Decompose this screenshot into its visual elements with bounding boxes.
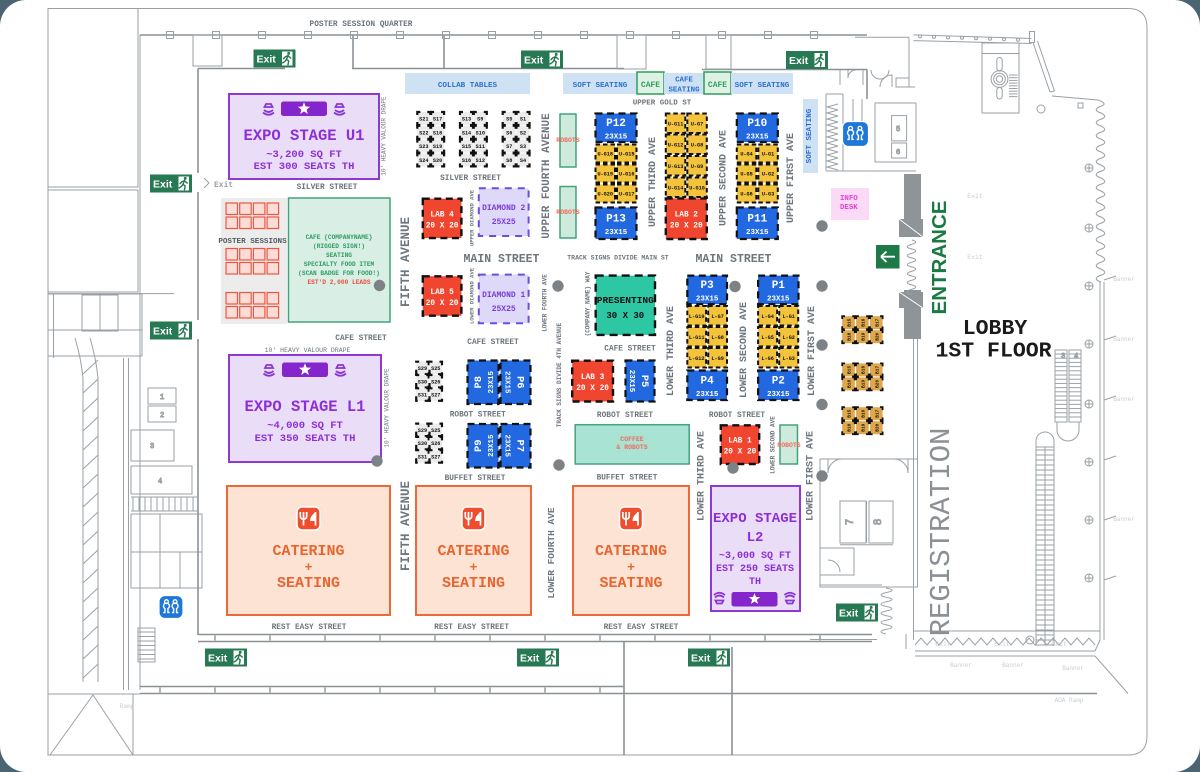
svg-text:U-G12: U-G12 <box>668 142 684 148</box>
svg-text:Exit: Exit <box>153 179 173 191</box>
svg-text:Exit: Exit <box>520 653 540 665</box>
svg-text:S27: S27 <box>431 454 440 460</box>
svg-text:P12: P12 <box>606 118 626 130</box>
svg-text:S3: S3 <box>520 144 526 150</box>
svg-text:ROBOTS: ROBOTS <box>556 209 580 216</box>
svg-text:SOFT SEATING: SOFT SEATING <box>573 82 628 90</box>
svg-text:Exit: Exit <box>257 54 277 66</box>
svg-text:U-G18: U-G18 <box>597 152 613 158</box>
svg-text:L-G6: L-G6 <box>761 356 773 362</box>
svg-text:L-G1: L-G1 <box>782 314 794 320</box>
svg-text:ROBOTS: ROBOTS <box>556 137 580 144</box>
svg-text:20 X 20: 20 X 20 <box>426 300 459 308</box>
svg-text:{COMPANY_NAME} WAY: {COMPANY_NAME} WAY <box>585 271 592 336</box>
svg-text:CAFE {COMPANYNAME}: CAFE {COMPANYNAME} <box>306 234 373 241</box>
svg-text:B18: B18 <box>847 380 853 388</box>
svg-text:S21: S21 <box>419 117 428 123</box>
svg-text:Exit: Exit <box>935 641 951 648</box>
svg-text:S6: S6 <box>506 130 512 136</box>
svg-text:ROBOT STREET: ROBOT STREET <box>709 412 765 420</box>
svg-text:L-G8: L-G8 <box>711 335 723 341</box>
svg-text:U-G2: U-G2 <box>762 172 774 178</box>
svg-text:1: 1 <box>160 394 164 402</box>
svg-text:B15: B15 <box>847 318 853 326</box>
svg-text:UPPER GOLD ST: UPPER GOLD ST <box>633 100 692 108</box>
svg-text:P9: P9 <box>473 439 485 452</box>
svg-text:S27: S27 <box>431 393 440 399</box>
svg-text:B20: B20 <box>874 332 880 340</box>
svg-text:L-G3: L-G3 <box>782 356 794 362</box>
svg-text:CAFE STREET: CAFE STREET <box>467 339 519 347</box>
svg-text:ROBOTS: ROBOTS <box>777 442 801 449</box>
svg-text:SILVER STREET: SILVER STREET <box>440 175 501 183</box>
svg-text:U-G3: U-G3 <box>762 192 774 198</box>
svg-text:Exit: Exit <box>789 55 809 67</box>
svg-text:S17: S17 <box>433 117 442 123</box>
svg-text:U-G4: U-G4 <box>740 152 752 158</box>
svg-text:S14: S14 <box>462 130 471 136</box>
svg-text:CAFE STREET: CAFE STREET <box>604 346 656 354</box>
svg-text:S5: S5 <box>506 117 512 123</box>
svg-text:4: 4 <box>1074 353 1078 361</box>
svg-text:TH: TH <box>749 577 761 588</box>
svg-text:Exit: Exit <box>208 653 228 665</box>
svg-text:5: 5 <box>896 126 900 134</box>
svg-text:UPPER DIAMOND AVE: UPPER DIAMOND AVE <box>469 189 476 246</box>
svg-text:P3: P3 <box>701 280 715 292</box>
svg-text:23X15: 23X15 <box>696 295 719 303</box>
svg-text:S22: S22 <box>419 130 428 136</box>
svg-text:Ramp: Ramp <box>120 703 135 710</box>
svg-text:LOWER THIRD AVE: LOWER THIRD AVE <box>666 306 677 396</box>
svg-text:U-G13: U-G13 <box>668 164 684 170</box>
svg-text:S15: S15 <box>462 144 471 150</box>
svg-text:B16: B16 <box>860 366 866 374</box>
svg-text:L2: L2 <box>747 530 764 546</box>
svg-text:U-G15: U-G15 <box>619 152 635 158</box>
svg-text:23X15: 23X15 <box>746 229 769 237</box>
svg-text:LOWER FIRST AVE: LOWER FIRST AVE <box>806 431 817 521</box>
svg-text:P7: P7 <box>514 439 526 452</box>
svg-text:LOWER SECOND AVE: LOWER SECOND AVE <box>770 416 777 474</box>
svg-text:EXPO STAGE L1: EXPO STAGE L1 <box>245 398 366 416</box>
svg-text:BUFFET STREET: BUFFET STREET <box>445 475 506 483</box>
svg-text:SILVER STREET: SILVER STREET <box>297 184 358 192</box>
svg-text:U-G7: U-G7 <box>691 121 703 127</box>
svg-text:S12: S12 <box>476 158 485 164</box>
svg-text:B19: B19 <box>860 423 866 431</box>
svg-text:S16: S16 <box>462 158 471 164</box>
svg-text:PRESENTING: PRESENTING <box>597 295 654 306</box>
svg-text:UPPER SECOND AVE: UPPER SECOND AVE <box>719 130 730 226</box>
svg-text:U-G1: U-G1 <box>762 152 774 158</box>
svg-text:B16: B16 <box>860 318 866 326</box>
svg-text:S18: S18 <box>433 130 442 136</box>
svg-text:MAIN STREET: MAIN STREET <box>696 253 772 266</box>
svg-text:23X15: 23X15 <box>503 434 511 457</box>
svg-text:P4: P4 <box>701 375 715 387</box>
svg-text:U-G20: U-G20 <box>597 192 613 198</box>
svg-text:SOFT SEATING: SOFT SEATING <box>735 82 790 90</box>
svg-text:CAFE: CAFE <box>675 77 693 85</box>
svg-text:UPPER FOURTH AVENUE: UPPER FOURTH AVENUE <box>541 113 553 239</box>
svg-text:Exit: Exit <box>839 608 859 620</box>
svg-text:EXPO STAGE: EXPO STAGE <box>713 511 797 527</box>
svg-text:S11: S11 <box>476 144 485 150</box>
svg-text:LAB 4: LAB 4 <box>430 211 454 219</box>
svg-text:Exit: Exit <box>691 653 711 665</box>
svg-text:4: 4 <box>158 478 162 486</box>
svg-text:EXPO STAGE U1: EXPO STAGE U1 <box>244 127 365 145</box>
svg-text:S23: S23 <box>419 144 428 150</box>
svg-text:ROBOT STREET: ROBOT STREET <box>597 412 653 420</box>
svg-text:Exit: Exit <box>1051 641 1067 648</box>
svg-text:FIFTH AVENUE: FIFTH AVENUE <box>399 481 413 571</box>
svg-text:Exit: Exit <box>524 55 544 67</box>
svg-text:S24: S24 <box>419 158 428 164</box>
svg-text:SEATING: SEATING <box>277 575 340 592</box>
svg-text:CATERING: CATERING <box>272 543 344 560</box>
svg-text:L-G9: L-G9 <box>711 356 723 362</box>
svg-text:L-G12: L-G12 <box>689 356 705 362</box>
svg-text:S8: S8 <box>506 158 512 164</box>
svg-text:TRACK SIGNS DIVIDE 4TH AVENUE: TRACK SIGNS DIVIDE 4TH AVENUE <box>556 322 563 427</box>
svg-text:REGISTRATION: REGISTRATION <box>925 428 958 637</box>
svg-text:Exit: Exit <box>994 641 1010 648</box>
svg-text:Banner: Banner <box>1113 336 1135 343</box>
svg-text:S20: S20 <box>433 158 442 164</box>
svg-text:20 X 20: 20 X 20 <box>576 385 609 393</box>
svg-text:S29: S29 <box>418 428 427 434</box>
svg-text:L-G10: L-G10 <box>689 314 705 320</box>
svg-text:Banner: Banner <box>1113 396 1135 403</box>
svg-text:CATERING: CATERING <box>437 543 509 560</box>
svg-text:U-G19: U-G19 <box>597 172 613 178</box>
svg-text:(SCAN BADGE FOR FOOD!): (SCAN BADGE FOR FOOD!) <box>298 270 380 277</box>
svg-text:8: 8 <box>873 519 885 526</box>
svg-text:Exit: Exit <box>967 193 983 200</box>
svg-text:Exit: Exit <box>153 326 173 338</box>
svg-text:LAB 3: LAB 3 <box>581 374 605 382</box>
svg-text:+: + <box>305 560 313 575</box>
svg-text:~3,200 SQ FT: ~3,200 SQ FT <box>266 149 342 161</box>
svg-text:U-G5: U-G5 <box>740 172 752 178</box>
svg-text:23X15: 23X15 <box>767 295 790 303</box>
svg-text:LOWER DIAMOND AVE: LOWER DIAMOND AVE <box>469 267 476 324</box>
svg-text:S29: S29 <box>418 366 427 372</box>
svg-text:POSTER SESSION QUARTER: POSTER SESSION QUARTER <box>310 21 413 29</box>
svg-text:L-G7: L-G7 <box>711 314 723 320</box>
svg-text:10' HEAVY VALOUR DRAPE: 10' HEAVY VALOUR DRAPE <box>384 368 391 448</box>
svg-text:LOWER SECOND AVE: LOWER SECOND AVE <box>739 302 750 398</box>
svg-text:S1: S1 <box>520 117 526 123</box>
svg-text:P6: P6 <box>514 376 526 389</box>
svg-text:B18: B18 <box>847 423 853 431</box>
svg-text:INFO: INFO <box>840 195 858 203</box>
svg-text:S26: S26 <box>431 379 440 385</box>
svg-text:SEATING: SEATING <box>599 575 662 592</box>
svg-text:P2: P2 <box>772 375 785 387</box>
svg-text:U-G11: U-G11 <box>668 121 684 127</box>
svg-text:P10: P10 <box>747 118 767 130</box>
svg-text:UPPER THIRD AVE: UPPER THIRD AVE <box>648 137 659 227</box>
svg-text:23X15: 23X15 <box>503 371 511 394</box>
svg-text:B20: B20 <box>874 423 880 431</box>
svg-text:2: 2 <box>160 412 164 420</box>
svg-text:~3,000 SQ FT: ~3,000 SQ FT <box>719 551 791 562</box>
svg-text:Banner: Banner <box>1062 665 1084 672</box>
svg-text:ADA Ramp: ADA Ramp <box>1055 697 1084 704</box>
svg-text:P1: P1 <box>772 280 786 292</box>
svg-text:B17: B17 <box>874 409 880 417</box>
svg-text:S2: S2 <box>520 130 526 136</box>
svg-text:S25: S25 <box>431 428 440 434</box>
svg-text:EST 250 SEATS: EST 250 SEATS <box>716 564 794 575</box>
svg-text:REST EASY STREET: REST EASY STREET <box>434 624 509 632</box>
svg-text:S7: S7 <box>506 144 512 150</box>
svg-text:Banner: Banner <box>1113 276 1135 283</box>
svg-text:CAFE: CAFE <box>708 81 727 90</box>
svg-text:3: 3 <box>1061 353 1065 361</box>
svg-text:10' HEAVY VALOUR DRAPE: 10' HEAVY VALOUR DRAPE <box>381 96 388 176</box>
svg-text:COFFEE: COFFEE <box>620 436 644 443</box>
svg-text:SOFT SEATING: SOFT SEATING <box>806 108 814 163</box>
svg-text:23X15: 23X15 <box>605 229 628 237</box>
svg-text:B15: B15 <box>847 366 853 374</box>
svg-text:S31: S31 <box>418 454 427 460</box>
svg-text:7: 7 <box>845 519 857 526</box>
svg-text:B15: B15 <box>847 409 853 417</box>
svg-text:S26: S26 <box>431 441 440 447</box>
svg-text:25X25: 25X25 <box>492 218 516 227</box>
svg-text:LOWER THIRD AVE: LOWER THIRD AVE <box>697 431 708 521</box>
svg-text:FIFTH AVENUE: FIFTH AVENUE <box>399 217 413 307</box>
svg-text:+: + <box>470 560 478 575</box>
svg-text:~4,000 SQ FT: ~4,000 SQ FT <box>267 420 343 432</box>
svg-text:23X15: 23X15 <box>488 371 496 394</box>
svg-text:P13: P13 <box>606 213 626 225</box>
svg-text:B19: B19 <box>860 380 866 388</box>
svg-text:B17: B17 <box>874 318 880 326</box>
svg-text:6: 6 <box>896 149 900 157</box>
svg-text:Banner: Banner <box>950 662 972 669</box>
svg-text:1ST FLOOR: 1ST FLOOR <box>935 340 1051 364</box>
svg-text:20 X 20: 20 X 20 <box>724 449 757 457</box>
svg-text:COLLAB TABLES: COLLAB TABLES <box>438 82 498 90</box>
svg-text:U-G8: U-G8 <box>691 142 703 148</box>
svg-text:CAFE: CAFE <box>641 81 660 90</box>
svg-text:23X15: 23X15 <box>627 370 635 393</box>
svg-text:EST 350 SEATS TH: EST 350 SEATS TH <box>255 433 356 445</box>
svg-text:S31: S31 <box>418 393 427 399</box>
svg-text:LAB 2: LAB 2 <box>675 212 699 220</box>
svg-text:SEATING: SEATING <box>326 252 352 259</box>
svg-text:23X15: 23X15 <box>488 434 496 457</box>
svg-text:SEATING: SEATING <box>442 575 505 592</box>
svg-text:CATERING: CATERING <box>595 543 667 560</box>
svg-text:20 X 20: 20 X 20 <box>426 222 459 230</box>
svg-text:LOBBY: LOBBY <box>963 317 1028 341</box>
svg-text:ENTRANCE: ENTRANCE <box>928 201 951 315</box>
svg-text:SPECIALTY FOOD ITEM: SPECIALTY FOOD ITEM <box>304 261 375 268</box>
svg-text:U-G6: U-G6 <box>740 192 752 198</box>
svg-text:& ROBOTS: & ROBOTS <box>616 444 647 451</box>
svg-text:DIAMOND 2: DIAMOND 2 <box>482 204 525 213</box>
svg-text:L-G2: L-G2 <box>782 335 794 341</box>
svg-text:S9: S9 <box>477 117 483 123</box>
svg-text:B17: B17 <box>874 366 880 374</box>
svg-text:(RIGGED SIGN!): (RIGGED SIGN!) <box>313 243 365 250</box>
svg-text:Exit: Exit <box>214 181 233 190</box>
svg-text:Exit: Exit <box>967 254 983 261</box>
svg-text:LOWER FOURTH AVE: LOWER FOURTH AVE <box>542 274 549 332</box>
svg-text:BUFFET STREET: BUFFET STREET <box>597 475 658 483</box>
svg-text:23X15: 23X15 <box>746 133 769 141</box>
svg-text:REST EASY STREET: REST EASY STREET <box>272 624 347 632</box>
svg-text:U-G14: U-G14 <box>668 185 684 191</box>
svg-text:U-G10: U-G10 <box>689 185 705 191</box>
svg-text:+: + <box>627 560 635 575</box>
svg-text:L-G11: L-G11 <box>689 335 705 341</box>
svg-text:20 X 20: 20 X 20 <box>670 223 703 231</box>
svg-text:SEATING: SEATING <box>668 87 700 95</box>
svg-text:TRACK SIGNS DIVIDE MAIN ST: TRACK SIGNS DIVIDE MAIN ST <box>567 255 669 262</box>
svg-text:30 X 30: 30 X 30 <box>606 311 644 321</box>
svg-text:REST EASY STREET: REST EASY STREET <box>604 624 679 632</box>
svg-text:S25: S25 <box>431 366 440 372</box>
svg-text:P11: P11 <box>747 213 767 225</box>
svg-text:S30: S30 <box>418 379 427 385</box>
svg-text:U-G17: U-G17 <box>619 192 635 198</box>
svg-text:B19: B19 <box>860 332 866 340</box>
svg-text:U-G16: U-G16 <box>619 172 635 178</box>
svg-text:23X15: 23X15 <box>696 391 719 399</box>
svg-text:B16: B16 <box>860 409 866 417</box>
svg-text:S19: S19 <box>433 144 442 150</box>
svg-text:UPPER FIRST AVE: UPPER FIRST AVE <box>786 133 797 223</box>
svg-text:B18: B18 <box>847 332 853 340</box>
svg-text:S10: S10 <box>476 130 485 136</box>
svg-text:POSTER SESSIONS: POSTER SESSIONS <box>218 238 287 246</box>
svg-text:DESK: DESK <box>840 204 858 212</box>
svg-text:ROBOT STREET: ROBOT STREET <box>450 412 506 420</box>
svg-text:23X15: 23X15 <box>767 391 790 399</box>
svg-text:LOWER FIRST AVE: LOWER FIRST AVE <box>807 306 818 396</box>
svg-text:25X25: 25X25 <box>492 305 516 314</box>
svg-text:B20: B20 <box>874 380 880 388</box>
svg-text:L-G4: L-G4 <box>761 314 773 320</box>
svg-text:3: 3 <box>150 443 154 451</box>
svg-text:MAIN STREET: MAIN STREET <box>464 253 540 266</box>
svg-text:P5: P5 <box>638 375 650 388</box>
svg-text:EST'D 2,000 LEADS: EST'D 2,000 LEADS <box>307 279 370 286</box>
svg-text:LAB 5: LAB 5 <box>430 289 454 297</box>
svg-text:S30: S30 <box>418 441 427 447</box>
svg-text:Banner: Banner <box>1002 662 1024 669</box>
svg-text:S4: S4 <box>520 158 526 164</box>
svg-text:U-G9: U-G9 <box>691 164 703 170</box>
svg-text:10' HEAVY VALOUR DRAPE: 10' HEAVY VALOUR DRAPE <box>265 347 351 354</box>
svg-text:23X15: 23X15 <box>605 133 628 141</box>
svg-text:LOWER FOURTH AVE: LOWER FOURTH AVE <box>546 507 557 599</box>
svg-text:EST 300 SEATS TH: EST 300 SEATS TH <box>254 161 355 173</box>
svg-text:P8: P8 <box>473 376 485 389</box>
svg-text:LAB 1: LAB 1 <box>728 438 752 446</box>
svg-text:DIAMOND 1: DIAMOND 1 <box>482 291 525 300</box>
svg-text:Banner: Banner <box>1113 516 1135 523</box>
svg-text:CAFE STREET: CAFE STREET <box>335 335 387 343</box>
svg-text:L-G5: L-G5 <box>761 335 773 341</box>
svg-text:S13: S13 <box>462 117 471 123</box>
